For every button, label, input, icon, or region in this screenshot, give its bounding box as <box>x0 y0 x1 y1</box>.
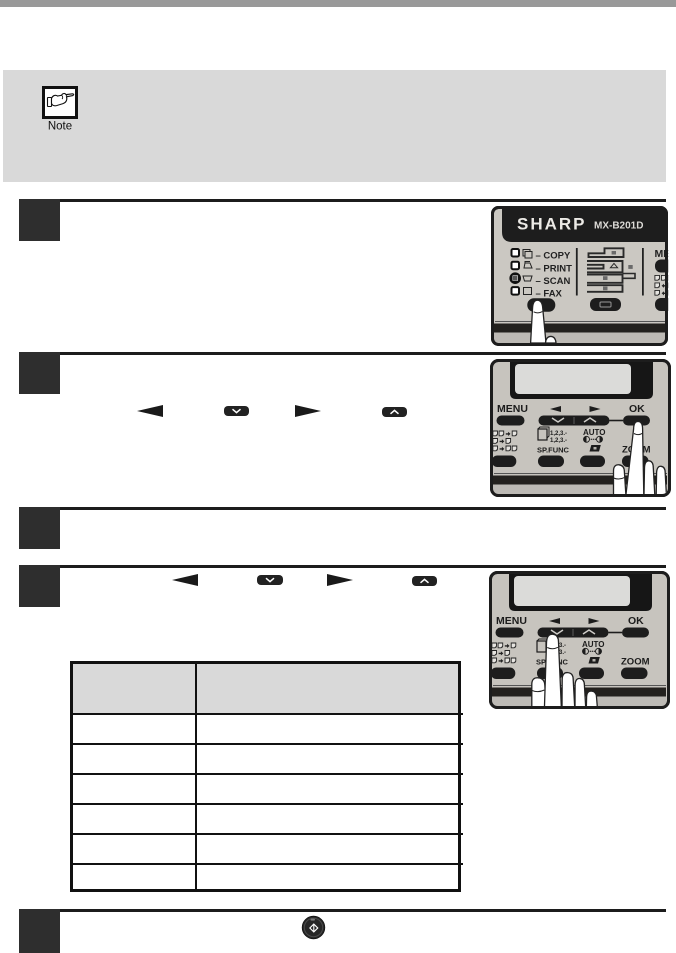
svg-text:Note: Note <box>48 121 72 133</box>
svg-text:MX-B201D: MX-B201D <box>594 221 643 232</box>
svg-text:– PRINT: – PRINT <box>536 263 573 274</box>
svg-text:– FAX: – FAX <box>536 289 563 300</box>
svg-text:– COPY: – COPY <box>536 251 572 262</box>
svg-text:– SCAN: – SCAN <box>536 276 571 287</box>
svg-text:SHARP: SHARP <box>517 215 587 234</box>
